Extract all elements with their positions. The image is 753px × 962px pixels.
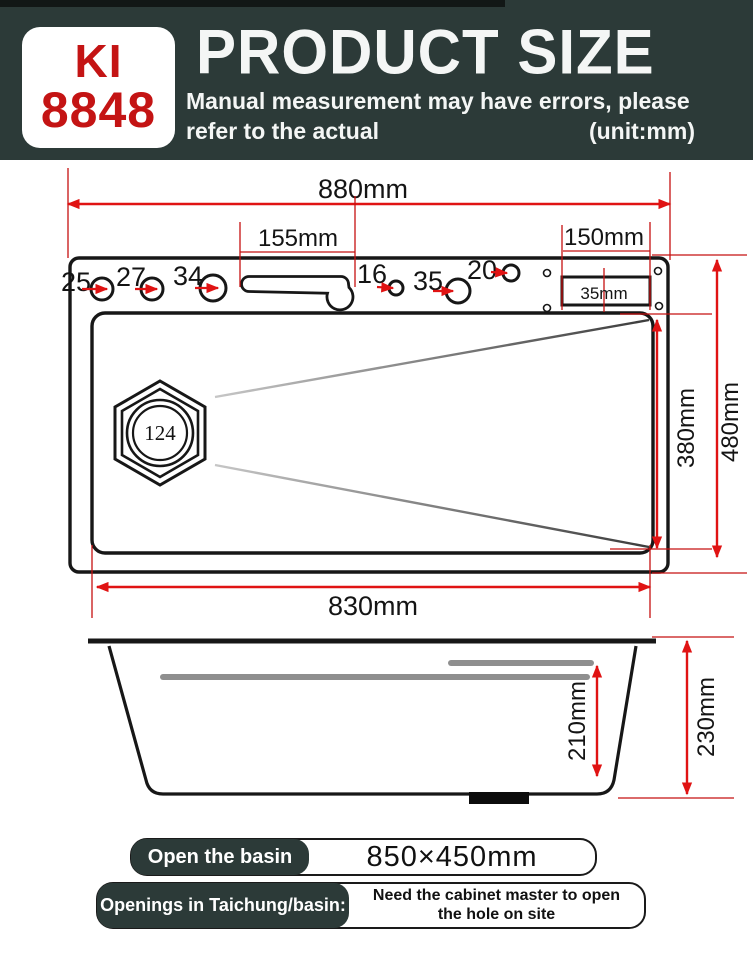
- dimension-380: 380mm: [610, 314, 712, 549]
- basin-size-label: Open the basin: [131, 839, 309, 875]
- drain-stub: [469, 792, 529, 804]
- dim-cutout-width: 150mm: [564, 224, 644, 251]
- openings-label: Openings in Taichung/basin:: [97, 883, 349, 928]
- dim-basin-depth: 380mm: [673, 388, 700, 468]
- openings-note: Need the cabinet master to open the hole…: [349, 884, 644, 927]
- dim-cutout-depth: 35mm: [580, 284, 627, 303]
- hole-label-25: 25: [61, 267, 91, 297]
- product-size-diagram: 124 25 27 34 16 35 20 880mm: [0, 160, 753, 840]
- dim-overall-depth: 480mm: [717, 382, 744, 462]
- basin-size-badge: Open the basin 850×450mm: [130, 838, 597, 876]
- rail-bar-lower: [160, 674, 590, 680]
- dim-inner-depth: 210mm: [564, 681, 591, 761]
- side-view-body: [109, 646, 636, 794]
- header-subtitle-line1: Manual measurement may have errors, plea…: [186, 88, 690, 115]
- openings-badge: Openings in Taichung/basin: Need the cab…: [96, 882, 646, 929]
- rail-bar-upper: [448, 660, 594, 666]
- drain-icon: 124: [115, 381, 205, 485]
- dimension-155: 155mm: [240, 196, 355, 287]
- hole-label-27: 27: [116, 262, 146, 292]
- basin-size-value: 850×450mm: [309, 840, 595, 874]
- hole-label-20: 20: [467, 255, 497, 285]
- openings-note-line2: the hole on site: [438, 906, 555, 924]
- drain-size-label: 124: [144, 421, 176, 445]
- model-code-line1: KI: [75, 38, 123, 84]
- hole-label-34: 34: [173, 261, 203, 291]
- header-top-strip: [0, 0, 505, 7]
- unit-note: (unit:mm): [589, 118, 695, 145]
- openings-note-line1: Need the cabinet master to open: [373, 887, 620, 905]
- model-code-line2: 8848: [41, 84, 156, 137]
- dimension-830: 830mm: [92, 545, 650, 621]
- dim-overall-width: 880mm: [318, 174, 408, 204]
- dimension-150: 150mm 35mm: [562, 222, 650, 312]
- model-badge: KI 8848: [22, 27, 175, 148]
- dim-slot-width: 155mm: [258, 225, 338, 252]
- dimension-230: 230mm: [618, 637, 734, 798]
- page-title: PRODUCT SIZE: [196, 16, 736, 88]
- basin-slope-line-upper: [215, 320, 649, 397]
- header-banner: KI 8848 PRODUCT SIZE Manual measurement …: [0, 0, 753, 160]
- basin-inner-outline: [92, 313, 653, 553]
- dimension-210: 210mm: [564, 666, 597, 776]
- dim-basin-length: 830mm: [328, 591, 418, 621]
- hole-label-16: 16: [357, 259, 387, 289]
- dim-overall-height: 230mm: [693, 677, 720, 757]
- basin-slope-line-lower: [215, 465, 649, 547]
- header-subtitle-line2: refer to the actual: [186, 118, 379, 145]
- faucet-slot: [242, 277, 353, 310]
